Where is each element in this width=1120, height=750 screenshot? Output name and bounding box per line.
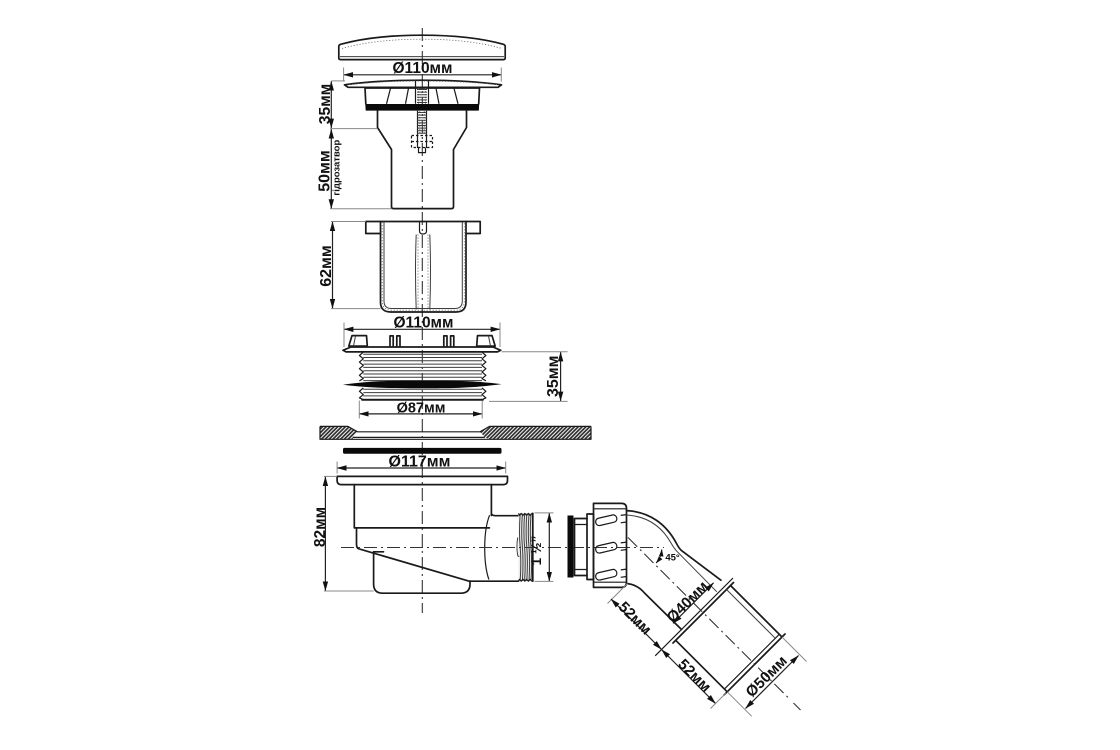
svg-text:82мм: 82мм <box>312 507 329 547</box>
svg-text:35мм: 35мм <box>545 356 562 397</box>
svg-text:45°: 45° <box>665 553 680 564</box>
svg-text:1 ½”: 1 ½” <box>529 536 544 566</box>
svg-text:гідрозатвор: гідрозатвор <box>332 140 343 196</box>
